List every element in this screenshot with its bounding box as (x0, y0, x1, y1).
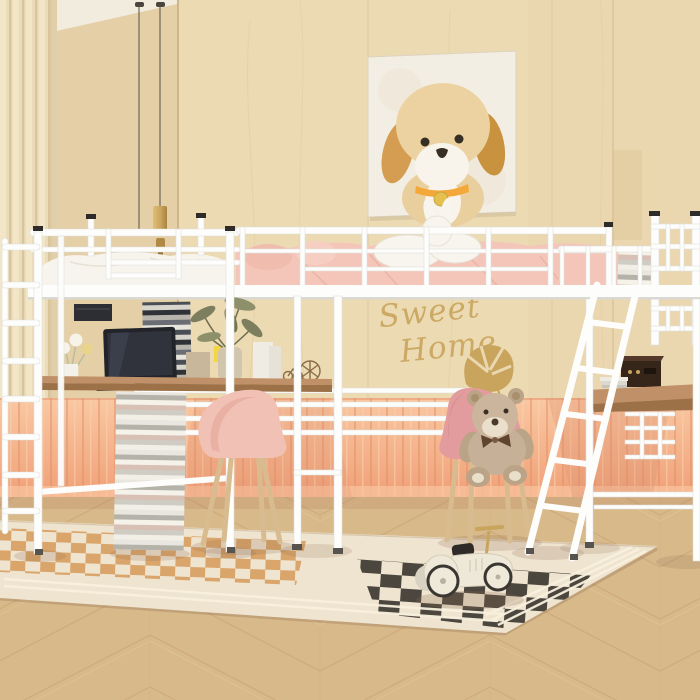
middle-post (294, 296, 301, 548)
dog-canvas-painting (368, 51, 516, 228)
car-gold-handle (477, 527, 502, 529)
vintage-radio (621, 356, 664, 387)
books-under-desk (114, 391, 187, 550)
standing-book (269, 346, 281, 380)
teddy-nose (492, 419, 499, 426)
middle-post (334, 296, 342, 552)
room-photo: Sweet Home (0, 0, 700, 700)
books-on-bed (617, 249, 654, 286)
dark-wall-shelf (74, 304, 112, 321)
left-front-post (34, 232, 42, 554)
dog-eye (421, 138, 430, 147)
right-edge-post (693, 299, 700, 561)
beige-box (186, 352, 210, 380)
dog-eye (455, 135, 464, 144)
pink-pillow (244, 244, 292, 270)
